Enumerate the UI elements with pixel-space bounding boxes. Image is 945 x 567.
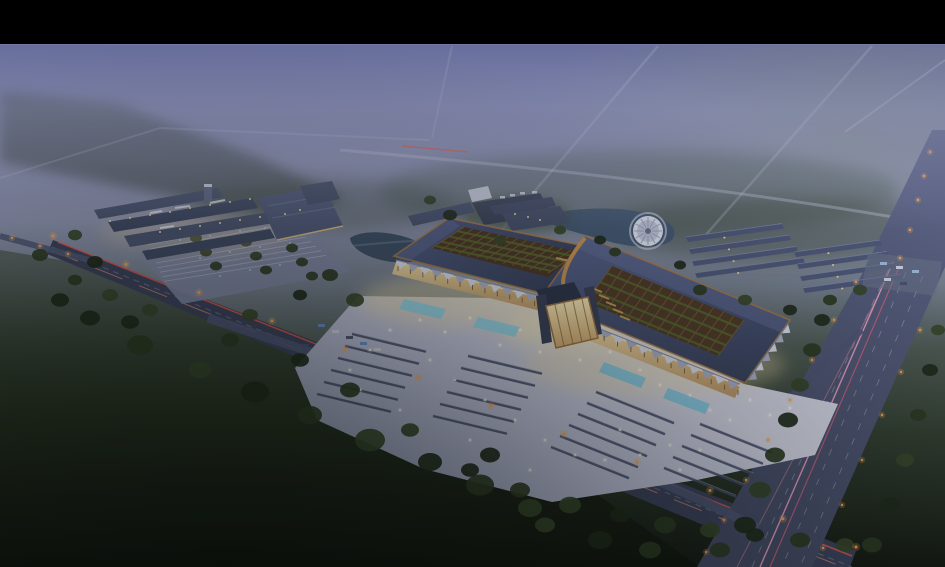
letterbox-top-bar: [0, 0, 945, 44]
vignette: [0, 44, 945, 567]
aerial-scene: [0, 0, 945, 567]
rendering-image: [0, 0, 945, 567]
